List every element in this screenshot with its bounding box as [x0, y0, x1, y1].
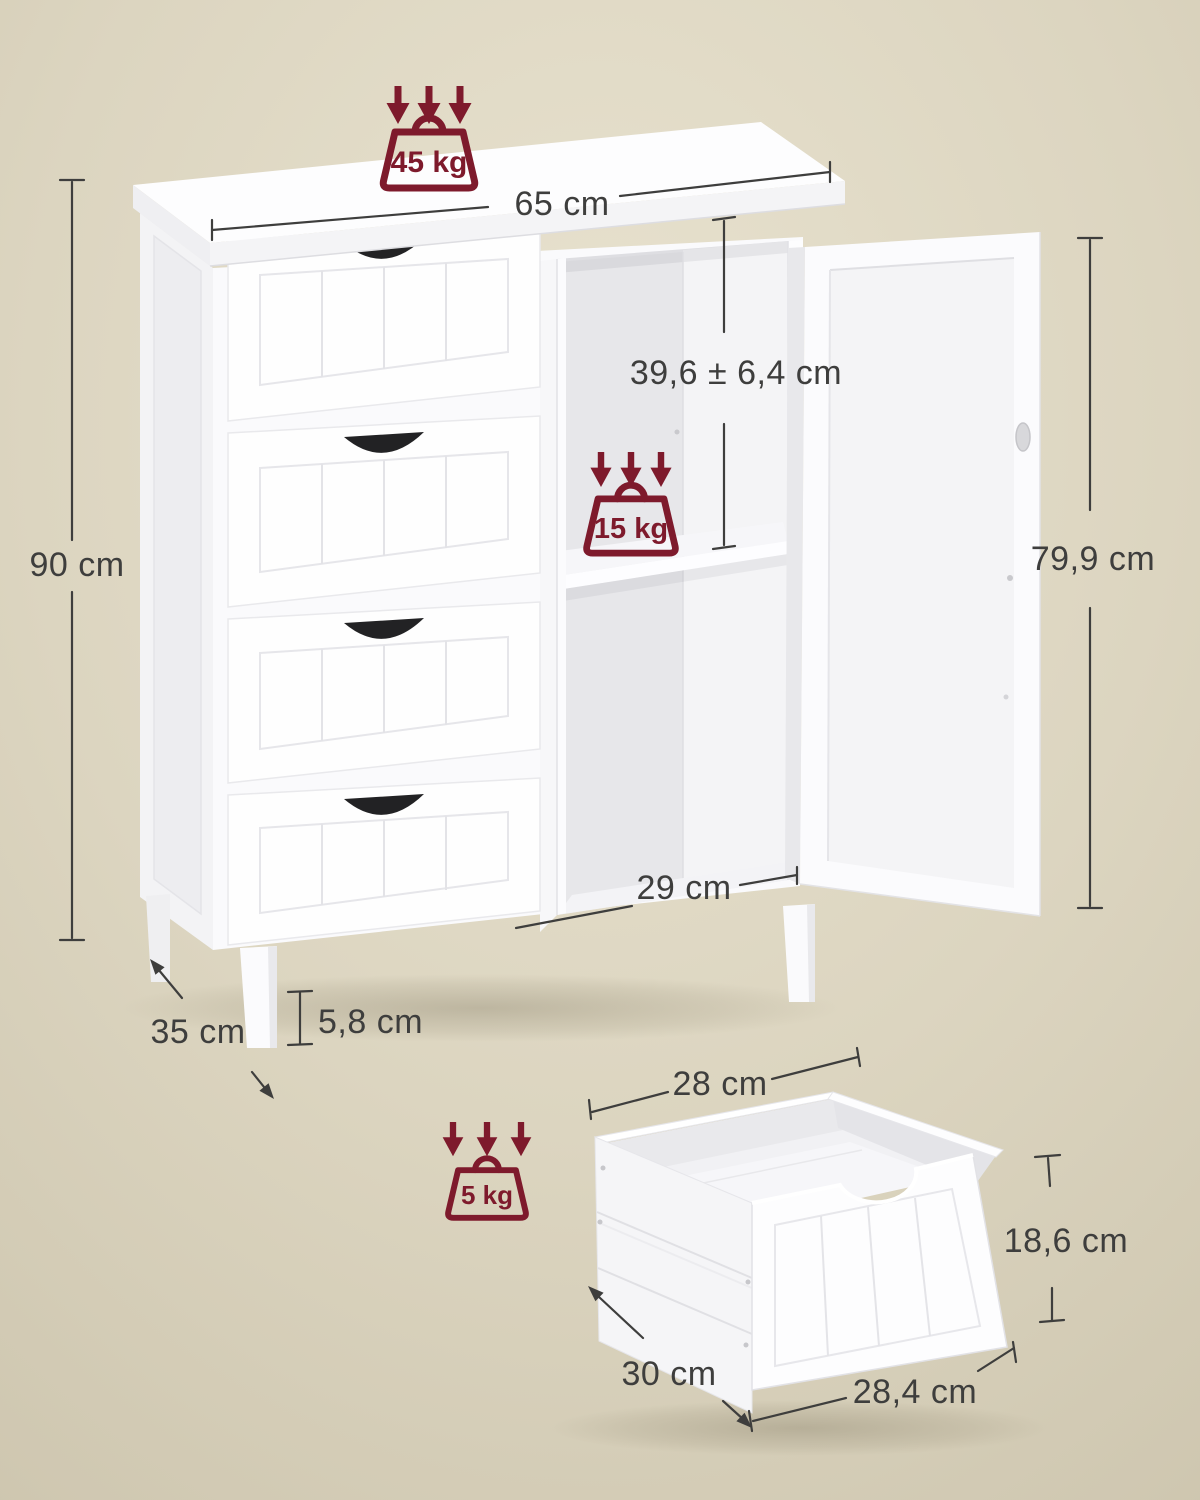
- drawer-depth-label: 30 cm: [621, 1355, 716, 1393]
- top-load-label: 45 kg: [391, 146, 468, 179]
- drawer-2[interactable]: [228, 416, 540, 607]
- leg-height-label: 5,8 cm: [318, 1003, 423, 1041]
- height-label: 90 cm: [29, 546, 124, 584]
- drawer-bottom-width-label: 28,4 cm: [853, 1373, 977, 1411]
- drawer-load-label: 5 kg: [461, 1180, 513, 1210]
- center-stile: [540, 259, 557, 932]
- door-screw: [1007, 575, 1013, 581]
- shelf-load-label: 15 kg: [594, 513, 668, 545]
- depth-label: 35 cm: [150, 1013, 245, 1051]
- compartment-width-label: 29 cm: [636, 869, 731, 907]
- product-dimension-diagram: 45 kg 65 cm 39,6 ± 6,4 cm 15 kg 90 c: [0, 0, 1200, 1500]
- door-panel: [828, 258, 1014, 888]
- compartment-height-label: 39,6 ± 6,4 cm: [630, 354, 842, 392]
- cabinet-door[interactable]: [785, 232, 1040, 916]
- drawer-top-width-label: 28 cm: [672, 1065, 767, 1103]
- door-height-label: 79,9 cm: [1031, 540, 1155, 578]
- open-compartment: [557, 241, 788, 915]
- drawer-height-label: 18,6 cm: [1004, 1222, 1128, 1260]
- arrows-down-icon: [590, 452, 671, 487]
- width-label: 65 cm: [514, 185, 609, 223]
- door-screw: [1004, 695, 1009, 700]
- cabinet-left-side-panel: [140, 213, 213, 950]
- door-handle[interactable]: [1016, 423, 1030, 451]
